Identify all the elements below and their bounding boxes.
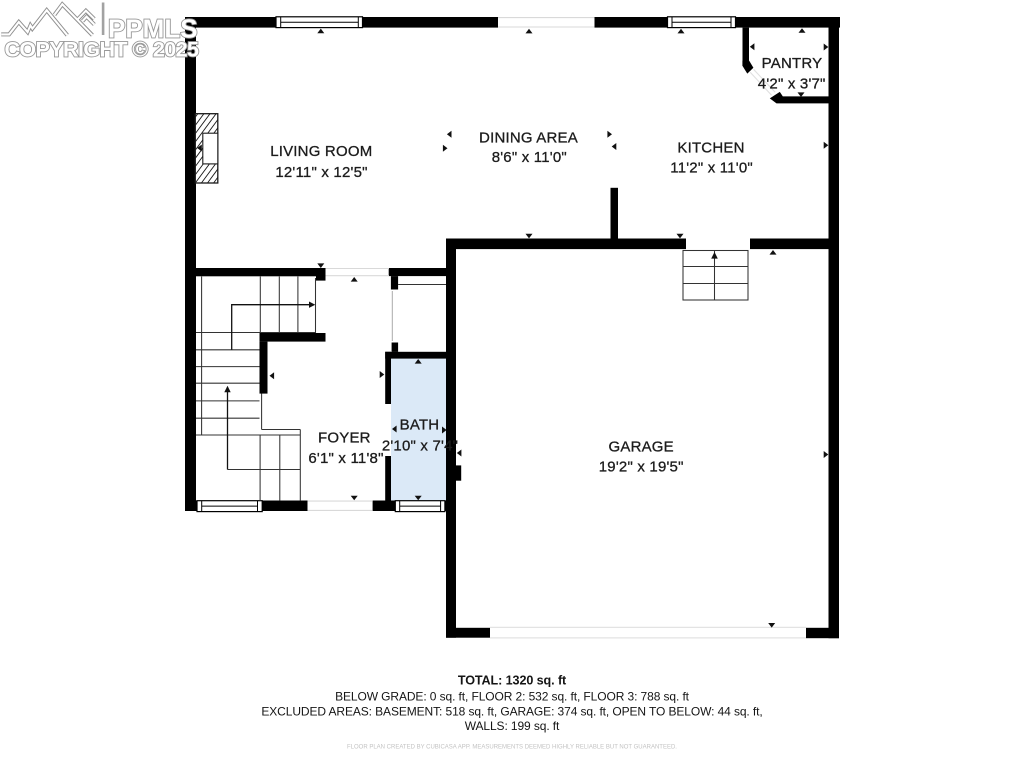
svg-text:6'1" x 11'8": 6'1" x 11'8" [308,450,383,467]
svg-text:2'10" x 7'4": 2'10" x 7'4" [382,438,458,455]
svg-text:8'6" x 11'0": 8'6" x 11'0" [492,149,567,166]
svg-text:BELOW GRADE: 0 sq. ft, FLOOR 2: BELOW GRADE: 0 sq. ft, FLOOR 2: 532 sq. … [335,689,690,703]
svg-text:12'11" x 12'5": 12'11" x 12'5" [275,164,367,181]
svg-text:EXCLUDED AREAS: BASEMENT: 518: EXCLUDED AREAS: BASEMENT: 518 sq. ft, GA… [261,704,762,718]
svg-text:DINING AREA: DINING AREA [479,130,578,147]
svg-text:COPYRIGHT © 2025: COPYRIGHT © 2025 [5,37,199,61]
svg-text:GARAGE: GARAGE [609,438,674,455]
svg-text:FLOOR PLAN CREATED BY CUBICASA: FLOOR PLAN CREATED BY CUBICASA APP. MEAS… [347,744,677,750]
svg-text:FOYER: FOYER [318,430,371,447]
svg-text:WALLS: 199 sq. ft: WALLS: 199 sq. ft [465,719,560,733]
svg-text:KITCHEN: KITCHEN [677,140,744,157]
svg-text:BATH: BATH [400,417,440,434]
svg-text:LIVING ROOM: LIVING ROOM [270,143,372,160]
svg-text:4'2" x 3'7": 4'2" x 3'7" [758,76,826,93]
svg-text:19'2" x 19'5": 19'2" x 19'5" [599,459,684,476]
svg-text:PANTRY: PANTRY [762,55,823,72]
svg-text:11'2" x 11'0": 11'2" x 11'0" [670,159,753,176]
svg-text:TOTAL: 1320 sq. ft: TOTAL: 1320 sq. ft [458,673,567,687]
